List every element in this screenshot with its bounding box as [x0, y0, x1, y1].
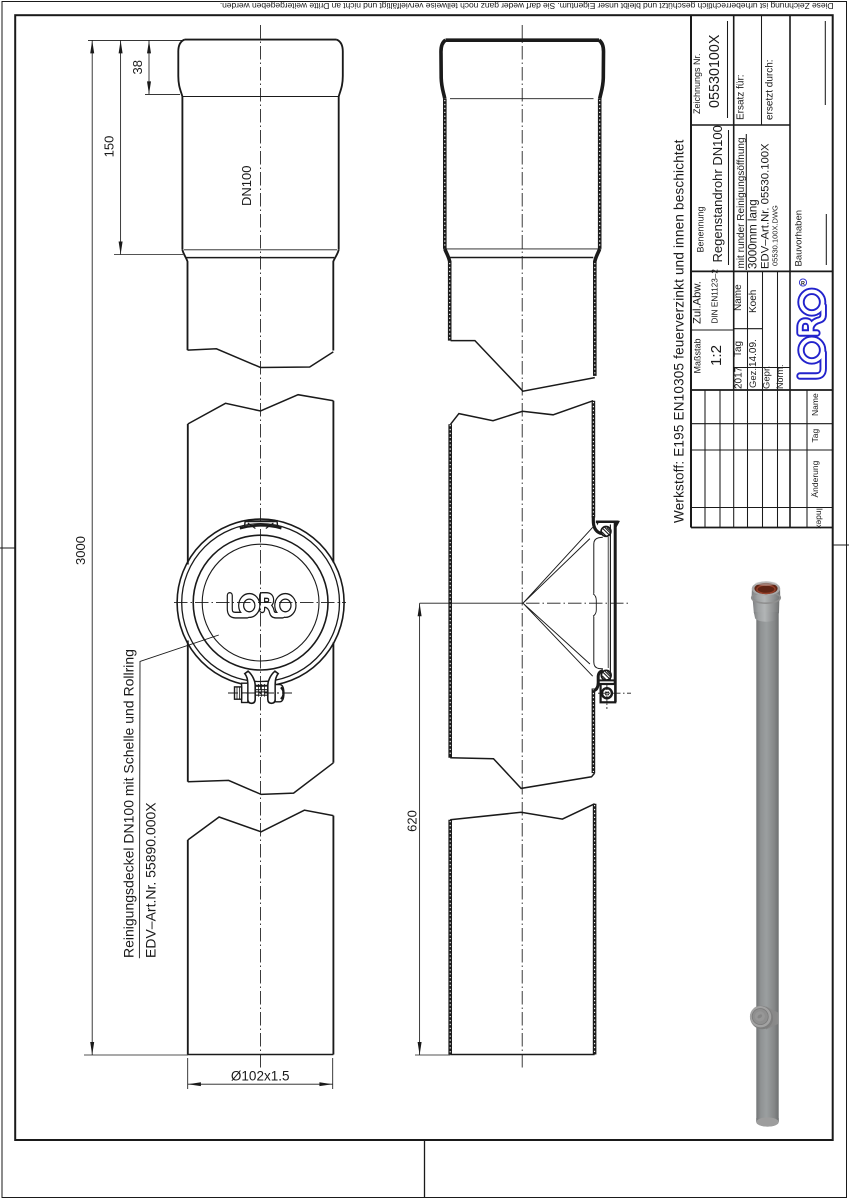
svg-text:Änderung: Änderung	[810, 460, 820, 497]
svg-text:14.09.: 14.09.	[748, 339, 759, 367]
svg-text:Bauvorhaben: Bauvorhaben	[794, 210, 805, 267]
svg-text:Ersatz für:: Ersatz für:	[736, 74, 747, 120]
svg-text:Tag: Tag	[733, 341, 744, 357]
svg-text:Reinigungsdeckel DN100 mit Sch: Reinigungsdeckel DN100 mit Schelle und R…	[120, 649, 136, 958]
svg-text:150: 150	[101, 136, 116, 158]
svg-text:1:2: 1:2	[708, 345, 725, 366]
svg-text:Maßstab: Maßstab	[693, 338, 703, 373]
svg-text:R: R	[801, 281, 805, 287]
svg-text:Gez.: Gez.	[748, 368, 759, 388]
svg-text:Zeichnungs Nr.: Zeichnungs Nr.	[692, 53, 702, 114]
svg-text:Name: Name	[733, 284, 744, 311]
svg-text:mit runder Reinigungsöffnung: mit runder Reinigungsöffnung	[736, 137, 747, 268]
svg-text:2017: 2017	[734, 366, 745, 389]
svg-text:3000: 3000	[73, 536, 88, 565]
svg-text:Ø102x1.5: Ø102x1.5	[231, 1069, 290, 1084]
svg-text:Name: Name	[810, 393, 820, 416]
svg-text:Werkstoff: E195 EN10305 feu: Werkstoff: E195 EN10305 feuerverzinkt un…	[672, 139, 687, 523]
svg-text:Gepr.: Gepr.	[762, 366, 773, 389]
svg-text:620: 620	[404, 810, 419, 832]
svg-text:3000mm lang: 3000mm lang	[748, 199, 760, 269]
svg-text:05530.100X.DWG: 05530.100X.DWG	[771, 205, 780, 266]
svg-text:Koeh: Koeh	[748, 290, 759, 313]
svg-text:ersetzt durch:: ersetzt durch:	[765, 59, 776, 120]
svg-text:05530100X: 05530100X	[706, 35, 723, 109]
svg-text:Norm.: Norm.	[775, 365, 785, 390]
svg-text:Regenstandrohr DN100: Regenstandrohr DN100	[710, 125, 725, 262]
svg-text:DN100: DN100	[239, 166, 254, 206]
svg-text:38: 38	[130, 60, 145, 74]
svg-text:EDV–Art.Nr. 55890.000X: EDV–Art.Nr. 55890.000X	[143, 802, 159, 958]
svg-text:DIN EN1123–2: DIN EN1123–2	[711, 269, 720, 324]
svg-text:Benennung: Benennung	[696, 206, 706, 252]
svg-text:Tag: Tag	[810, 429, 820, 443]
svg-text:Zul.Abw.: Zul.Abw.	[692, 281, 704, 324]
svg-text:Diese Zeichnung ist urheberrec: Diese Zeichnung ist urheberrechtlich ges…	[220, 1, 834, 11]
svg-text:Index: Index	[815, 508, 825, 530]
